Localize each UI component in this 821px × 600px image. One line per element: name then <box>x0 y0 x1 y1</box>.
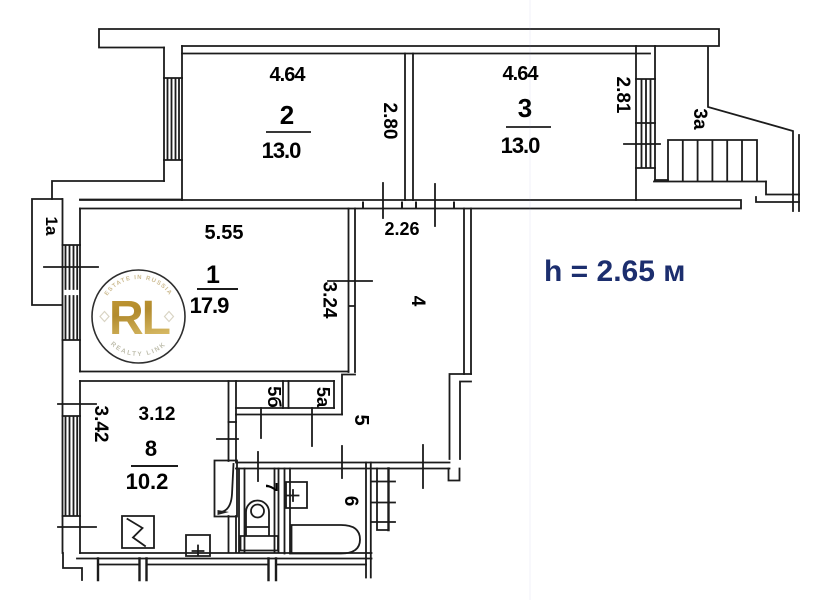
svg-text:8: 8 <box>145 436 157 461</box>
svg-text:5: 5 <box>350 414 372 425</box>
svg-text:1а: 1а <box>42 217 61 236</box>
svg-text:5а: 5а <box>313 387 334 408</box>
svg-text:2.81: 2.81 <box>612 77 633 114</box>
svg-text:13.0: 13.0 <box>262 138 302 163</box>
svg-text:3.24: 3.24 <box>319 282 340 319</box>
svg-text:4.64: 4.64 <box>270 64 307 86</box>
svg-text:2: 2 <box>280 100 294 130</box>
svg-text:3.42: 3.42 <box>90 406 111 443</box>
svg-text:5.55: 5.55 <box>205 222 244 244</box>
svg-text:5б: 5б <box>264 386 285 408</box>
svg-text:3a: 3a <box>689 108 710 130</box>
svg-text:7: 7 <box>262 482 281 491</box>
svg-text:2.26: 2.26 <box>384 219 419 239</box>
svg-text:h = 2.65 м: h = 2.65 м <box>544 255 685 288</box>
svg-text:3.12: 3.12 <box>139 404 176 425</box>
svg-text:10.2: 10.2 <box>126 469 169 494</box>
svg-text:6: 6 <box>340 496 361 507</box>
svg-text:1: 1 <box>206 261 220 289</box>
svg-text:13.0: 13.0 <box>501 133 541 158</box>
svg-text:17.9: 17.9 <box>190 293 230 318</box>
svg-text:2.80: 2.80 <box>379 103 400 140</box>
svg-text:4.64: 4.64 <box>503 63 540 85</box>
svg-text:RL: RL <box>109 292 170 345</box>
svg-text:4: 4 <box>407 296 428 307</box>
